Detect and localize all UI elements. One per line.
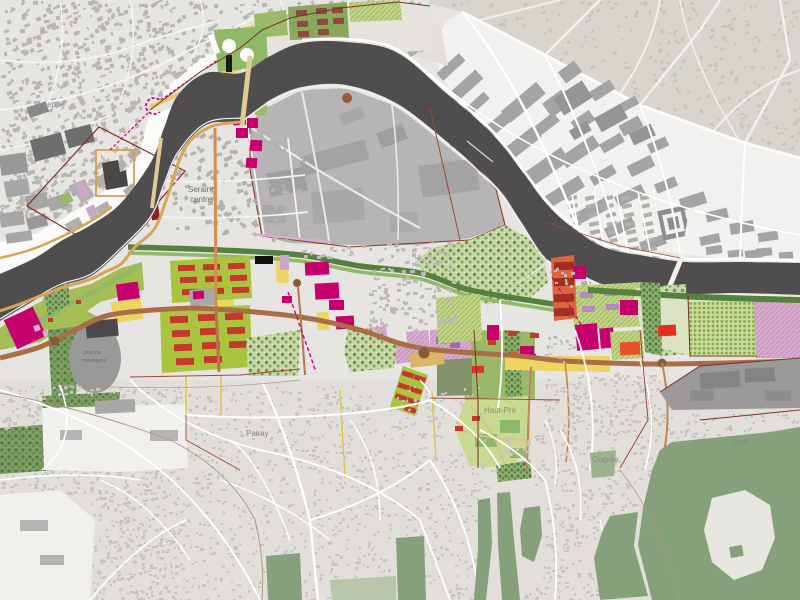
svg-text:Bèze: Bèze bbox=[733, 439, 749, 446]
svg-text:Ougrée: Ougrée bbox=[592, 455, 619, 464]
svg-text:Seraing: Seraing bbox=[188, 185, 216, 194]
svg-text:centre: centre bbox=[190, 195, 213, 204]
svg-text:piscine: piscine bbox=[84, 350, 101, 356]
svg-text:montagne: montagne bbox=[82, 358, 106, 364]
svg-text:Jemeppe: Jemeppe bbox=[32, 100, 65, 109]
svg-text:Pairay: Pairay bbox=[246, 429, 269, 438]
svg-text:Haut-Pré: Haut-Pré bbox=[484, 406, 517, 415]
